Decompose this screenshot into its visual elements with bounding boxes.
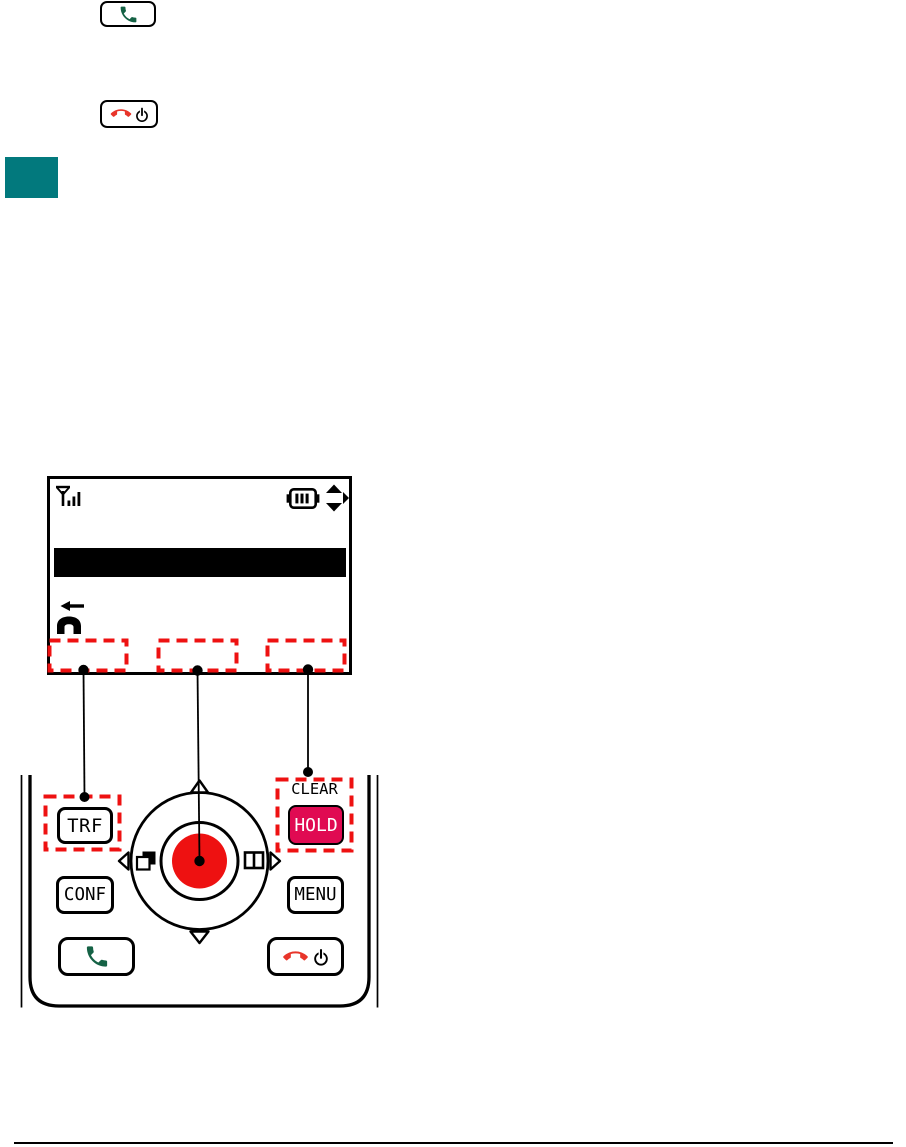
softkey-box-left: [50, 641, 127, 671]
clear-key-label: CLEAR: [277, 780, 352, 798]
menu-button-label: MENU: [294, 885, 336, 905]
nav-down-arrow[interactable]: [191, 932, 209, 944]
red-handset-icon: [282, 945, 309, 969]
conf-button-label: CONF: [64, 885, 106, 905]
green-handset-icon: [81, 943, 113, 970]
nav-left-arrow[interactable]: [119, 853, 129, 870]
directory-icon: [245, 853, 263, 869]
trf-button[interactable]: TRF: [57, 807, 113, 844]
nav-right-arrow[interactable]: [271, 853, 281, 870]
talk-button[interactable]: [58, 937, 135, 976]
hold-button-label: HOLD: [294, 815, 337, 836]
menu-button[interactable]: MENU: [287, 876, 344, 914]
diagram-overlay: [0, 0, 906, 1147]
end-power-button[interactable]: [267, 937, 344, 976]
conf-button[interactable]: CONF: [56, 876, 114, 914]
manual-page: TRF CLEAR HOLD CONF MENU: [0, 0, 906, 1147]
hold-button[interactable]: HOLD: [288, 805, 344, 845]
power-icon: [313, 947, 329, 967]
trf-button-label: TRF: [67, 815, 103, 837]
